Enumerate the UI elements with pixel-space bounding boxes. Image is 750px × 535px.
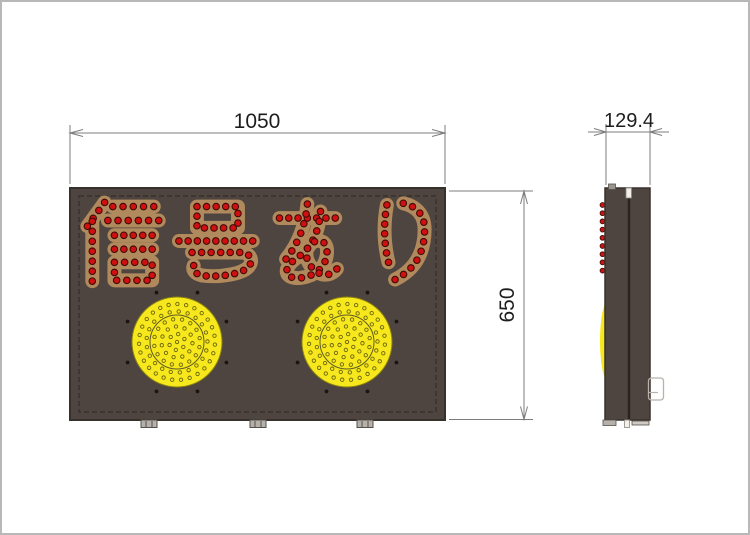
- led-dot: [283, 256, 290, 263]
- led-dot: [276, 215, 283, 222]
- led-dot: [121, 259, 128, 266]
- led-dot: [194, 222, 201, 229]
- led-dot: [297, 252, 304, 259]
- led-dot: [409, 203, 416, 210]
- led-dot: [308, 264, 315, 271]
- led-dot: [217, 249, 224, 256]
- led-dot: [155, 217, 162, 224]
- led-dot: [240, 238, 247, 245]
- side-led-dot: [600, 244, 605, 249]
- led-dot: [304, 201, 311, 208]
- led-dot: [332, 215, 339, 222]
- led-dot: [89, 268, 96, 275]
- dimension-width: 1050: [70, 110, 445, 184]
- led-dot: [249, 238, 256, 245]
- mount-dot: [395, 320, 399, 324]
- led-dot: [139, 246, 146, 253]
- led-dot: [382, 211, 389, 218]
- mount-dot: [196, 291, 200, 295]
- foot-fitting: [141, 420, 157, 428]
- led-dot: [105, 217, 112, 224]
- led-dot: [113, 277, 120, 284]
- mount-dot: [126, 320, 130, 324]
- led-dot: [231, 270, 238, 277]
- led-dot: [334, 266, 341, 273]
- led-dot: [311, 238, 318, 245]
- led-dot: [383, 250, 390, 257]
- led-dot: [324, 249, 331, 256]
- side-hanger: [626, 188, 632, 198]
- led-dot: [89, 278, 96, 285]
- led-dot: [212, 273, 219, 280]
- led-dot: [293, 239, 300, 246]
- led-dot: [227, 249, 234, 256]
- mount-dot: [395, 361, 399, 365]
- led-dot: [115, 217, 122, 224]
- led-dot: [247, 261, 254, 268]
- led-dot: [89, 258, 96, 265]
- mount-dot: [325, 390, 329, 394]
- led-dot: [149, 232, 156, 239]
- led-dot: [134, 277, 141, 284]
- led-dot: [382, 240, 389, 247]
- mount-dot: [225, 320, 229, 324]
- led-dot: [89, 228, 96, 235]
- dimension-depth: 129.4: [588, 110, 669, 185]
- led-dot: [317, 208, 324, 215]
- dimension-depth-value: 129.4: [604, 110, 654, 132]
- led-dot: [111, 232, 118, 239]
- led-dot: [316, 270, 323, 277]
- led-dot: [151, 203, 158, 210]
- led-dot: [149, 262, 156, 269]
- side-led-dot: [600, 219, 605, 224]
- led-dot: [110, 203, 117, 210]
- led-dot: [303, 211, 310, 218]
- side-led-dot: [600, 268, 605, 273]
- side-view: [600, 184, 664, 428]
- led-dot: [288, 274, 295, 281]
- front-view: [70, 188, 445, 428]
- led-dot: [139, 232, 146, 239]
- led-dot: [142, 259, 149, 266]
- led-dot: [325, 271, 332, 278]
- led-dot: [203, 203, 210, 210]
- led-dot: [120, 203, 127, 210]
- led-dot: [140, 203, 147, 210]
- led-dot: [381, 230, 388, 237]
- led-dot: [121, 246, 128, 253]
- side-foot: [625, 420, 630, 428]
- led-dot: [198, 249, 205, 256]
- led-dot: [211, 225, 218, 232]
- led-dot: [232, 203, 239, 210]
- side-bottom-fittings: [603, 420, 649, 428]
- led-dot: [149, 272, 156, 279]
- led-dot: [418, 248, 425, 255]
- led-dot: [201, 225, 208, 232]
- led-dot: [230, 225, 237, 232]
- led-dot: [421, 219, 428, 226]
- led-dot: [130, 232, 137, 239]
- led-dot: [222, 203, 229, 210]
- led-dot: [176, 238, 183, 245]
- led-dot: [213, 238, 220, 245]
- led-dot: [131, 259, 138, 266]
- led-dot: [101, 199, 108, 206]
- led-dot: [111, 269, 118, 276]
- led-dot: [222, 272, 229, 279]
- led-dot: [222, 238, 229, 245]
- led-dot: [308, 272, 315, 279]
- led-dot: [316, 218, 323, 225]
- led-dot: [213, 203, 220, 210]
- led-dot: [144, 277, 151, 284]
- led-dot: [203, 273, 210, 280]
- led-dot: [295, 215, 302, 222]
- side-led-dot: [600, 203, 605, 208]
- mount-dot: [155, 390, 159, 394]
- side-led-dot: [600, 227, 605, 232]
- dimension-height-value: 650: [496, 287, 519, 322]
- led-dot: [190, 262, 197, 269]
- led-dot: [414, 257, 421, 264]
- led-dot: [384, 202, 391, 209]
- led-dot: [304, 245, 311, 252]
- led-dot: [145, 217, 152, 224]
- led-dot: [203, 238, 210, 245]
- side-foot: [632, 421, 649, 425]
- side-body: [605, 188, 650, 420]
- side-led-dot: [600, 235, 605, 240]
- led-dot: [421, 229, 428, 236]
- dimension-height: 650: [449, 191, 533, 420]
- led-dot: [185, 238, 192, 245]
- led-dot: [289, 258, 296, 265]
- led-dot: [149, 246, 156, 253]
- led-dot: [89, 238, 96, 245]
- led-dot: [408, 265, 415, 272]
- led-dot: [400, 271, 407, 278]
- led-dot: [194, 213, 201, 220]
- led-dot: [285, 215, 292, 222]
- led-dot: [245, 252, 252, 259]
- led-dot: [385, 259, 392, 266]
- led-dot: [130, 203, 137, 210]
- led-dot: [194, 238, 201, 245]
- led-dot: [297, 230, 304, 237]
- led-dot: [220, 225, 227, 232]
- led-dot: [194, 203, 201, 210]
- mount-dot: [225, 361, 229, 365]
- led-dot: [236, 249, 243, 256]
- led-dot: [125, 217, 132, 224]
- led-dot: [284, 266, 291, 273]
- led-dot: [381, 221, 388, 228]
- led-dot: [323, 215, 330, 222]
- mount-dot: [366, 291, 370, 295]
- foot-fitting: [250, 420, 266, 428]
- led-dot: [420, 238, 427, 245]
- led-dot: [89, 248, 96, 255]
- led-dot: [400, 200, 407, 207]
- dimension-width-value: 1050: [234, 110, 281, 133]
- mount-dot: [325, 291, 329, 295]
- led-dot: [89, 218, 96, 225]
- mount-dot: [155, 291, 159, 295]
- led-dot: [96, 207, 103, 214]
- led-dot: [321, 239, 328, 246]
- led-dot: [322, 258, 329, 265]
- led-dot: [417, 210, 424, 217]
- mount-dot: [196, 390, 200, 394]
- led-dot: [111, 259, 118, 266]
- led-dot: [235, 210, 242, 217]
- mount-dot: [366, 390, 370, 394]
- foot-fitting: [357, 420, 373, 428]
- led-dot: [208, 249, 215, 256]
- led-dot: [135, 217, 142, 224]
- led-dot: [130, 246, 137, 253]
- side-led-dot: [600, 252, 605, 257]
- side-led-dot: [600, 211, 605, 216]
- mount-dot: [126, 361, 130, 365]
- led-dot: [194, 270, 201, 277]
- led-dot: [298, 275, 305, 282]
- led-dot: [121, 232, 128, 239]
- drawing-canvas: 1050 650 129.4: [0, 0, 750, 535]
- side-top-tab: [609, 184, 616, 190]
- mount-dot: [296, 361, 300, 365]
- led-dot: [301, 220, 308, 227]
- side-led-dot: [600, 260, 605, 265]
- led-dot: [231, 238, 238, 245]
- led-dot: [124, 277, 131, 284]
- led-dot: [313, 228, 320, 235]
- led-dot: [289, 248, 296, 255]
- mounting-feet: [141, 420, 373, 428]
- side-led-dots: [600, 203, 605, 273]
- led-dot: [189, 249, 196, 256]
- led-dot: [392, 276, 399, 283]
- led-dot: [111, 246, 118, 253]
- led-dot: [240, 267, 247, 274]
- side-foot: [603, 420, 616, 426]
- led-dot: [304, 255, 311, 262]
- technical-drawing: 1050 650 129.4: [2, 2, 750, 535]
- mount-dot: [296, 320, 300, 324]
